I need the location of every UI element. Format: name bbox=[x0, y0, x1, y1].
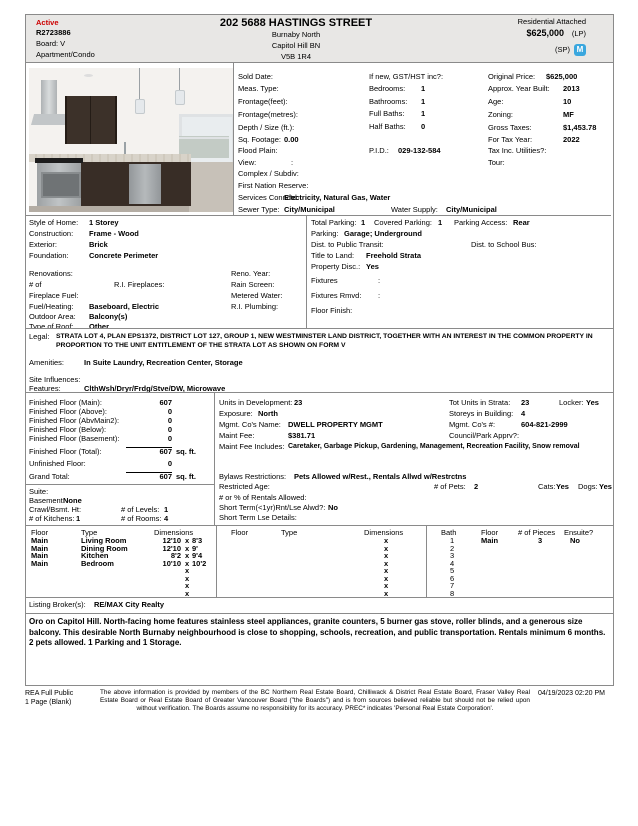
listing-photo bbox=[29, 68, 233, 212]
disclaimer-text: The above information is provided by mem… bbox=[100, 689, 530, 713]
rooms-baths-box: Floor Type Dimensions Main Living Room 1… bbox=[25, 525, 614, 599]
bedrooms-label: Bedrooms: bbox=[369, 85, 405, 94]
photo-oven-door bbox=[41, 172, 81, 198]
ff-basement-label: Finished Floor (Basement): bbox=[29, 435, 119, 444]
photo-divider bbox=[233, 63, 234, 215]
room-row-dim2: 10'2 bbox=[192, 560, 206, 569]
ff-total-label: Finished Floor (Total): bbox=[29, 448, 102, 457]
photo-ceiling-light bbox=[84, 74, 93, 77]
storeys-value: 4 bbox=[521, 410, 525, 419]
ff-total-unit: sq. ft. bbox=[176, 448, 196, 457]
full-baths-value: 1 bbox=[421, 110, 425, 119]
style-of-home-label: Style of Home: bbox=[29, 219, 78, 228]
kitchens-value: 1 bbox=[76, 515, 80, 524]
legal-box: Legal: STRATA LOT 4, PLAN EPS1372, DISTR… bbox=[25, 328, 614, 394]
construction-label: Construction: bbox=[29, 230, 73, 239]
gross-taxes-label: Gross Taxes: bbox=[488, 124, 532, 133]
status-badge: Active bbox=[36, 19, 59, 28]
fireplace-fuel-label: Fireplace Fuel: bbox=[29, 292, 79, 301]
unfinished-value: 0 bbox=[126, 460, 172, 469]
title-to-land-value: Freehold Strata bbox=[366, 252, 421, 261]
area-label: Burnaby North bbox=[171, 31, 421, 40]
column-divider bbox=[306, 215, 307, 329]
ff-above-value: 0 bbox=[126, 408, 172, 417]
year-built-value: 2013 bbox=[563, 85, 580, 94]
water-supply-label: Water Supply: bbox=[391, 206, 438, 215]
locker-value: Yes bbox=[586, 399, 599, 408]
suite-divider bbox=[26, 484, 214, 485]
maint-fee-value: $381.71 bbox=[288, 432, 315, 441]
legal-label: Legal: bbox=[29, 333, 49, 342]
list-price: $625,000 bbox=[526, 28, 564, 38]
table-divider bbox=[216, 526, 217, 598]
complex-label: Complex / Subdiv: bbox=[238, 170, 299, 179]
zoning-label: Zoning: bbox=[488, 111, 513, 120]
remarks-box: Oro on Capitol Hill. North-facing home f… bbox=[25, 613, 614, 686]
renovations-label: Renovations: bbox=[29, 270, 73, 279]
exposure-value: North bbox=[258, 410, 278, 419]
fixtures-rmvd-label: Fixtures Rmvd: bbox=[311, 292, 361, 301]
age-value: 10 bbox=[563, 98, 571, 107]
school-bus-label: Dist. to School Bus: bbox=[471, 241, 536, 250]
foundation-value: Concrete Perimeter bbox=[89, 252, 158, 261]
style-of-home-value: 1 Storey bbox=[89, 219, 119, 228]
rain-screen-label: Rain Screen: bbox=[231, 281, 274, 290]
num-pets-label: # of Pets: bbox=[434, 483, 466, 492]
tot-units-value: 23 bbox=[521, 399, 529, 408]
postal-code: V5B 1R4 bbox=[171, 53, 421, 62]
rentals-allowed-label: # or % of Rentals Allowed: bbox=[219, 494, 307, 503]
grand-total-value: 607 bbox=[126, 472, 172, 482]
maint-fee-label: Maint Fee: bbox=[219, 432, 254, 441]
fixtures-value: : bbox=[378, 277, 380, 286]
board-label: Board: V bbox=[36, 40, 65, 49]
photo-cabinet-seam bbox=[90, 96, 91, 144]
locker-label: Locker: bbox=[559, 399, 584, 408]
sewer-label: Sewer Type: bbox=[238, 206, 280, 215]
ff-main-value: 607 bbox=[126, 399, 172, 408]
lp-label: (LP) bbox=[572, 30, 586, 39]
parking-label: Parking: bbox=[311, 230, 339, 239]
room-row-type: Bedroom bbox=[81, 560, 114, 569]
short-term-value: No bbox=[328, 504, 338, 513]
total-parking-label: Total Parking: bbox=[311, 219, 356, 228]
fixtures-label: Fixtures bbox=[311, 277, 338, 286]
floor-finish-label: Floor Finish: bbox=[311, 307, 352, 316]
floor-area-box: Finished Floor (Main): 607 Finished Floo… bbox=[25, 392, 614, 527]
matrix-logo-icon[interactable]: M bbox=[574, 44, 586, 56]
bedrooms-value: 1 bbox=[421, 85, 425, 94]
grand-total-unit: sq. ft. bbox=[176, 473, 196, 482]
bathrooms-value: 1 bbox=[421, 98, 425, 107]
year-built-label: Approx. Year Built: bbox=[488, 85, 550, 94]
meas-type-label: Meas. Type: bbox=[238, 85, 279, 94]
dwelling-type: Apartment/Condo bbox=[36, 51, 95, 60]
property-class: Residential Attached bbox=[518, 18, 586, 27]
tax-inc-label: Tax Inc. Utilities?: bbox=[488, 147, 546, 156]
photo-pendant-light-1 bbox=[135, 99, 145, 114]
view-label: View: bbox=[238, 159, 256, 168]
bylaws-label: Bylaws Restrictions: bbox=[219, 473, 286, 482]
room-row-floor: Main bbox=[31, 560, 48, 569]
photo-faucet bbox=[124, 142, 126, 154]
bylaws-value: Pets Allowed w/Rest., Rentals Allwd w/Re… bbox=[294, 473, 466, 482]
zoning-value: MF bbox=[563, 111, 574, 120]
tax-year-label: For Tax Year: bbox=[488, 136, 532, 145]
amenities-label: Amenities: bbox=[29, 359, 64, 368]
covered-parking-value: 1 bbox=[438, 219, 442, 228]
sold-date-label: Sold Date: bbox=[238, 73, 273, 82]
mgmt-name-label: Mgmt. Co's Name: bbox=[219, 421, 281, 430]
section-divider bbox=[26, 215, 611, 216]
report-name-line1: REA Full Public bbox=[25, 690, 73, 698]
photo-living-area-floor bbox=[189, 162, 233, 212]
construction-value: Frame - Wood bbox=[89, 230, 139, 239]
page-title-address: 202 5688 HASTINGS STREET bbox=[171, 17, 421, 30]
subarea-label: Capitol Hill BN bbox=[171, 42, 421, 51]
amenities-value: In Suite Laundry, Recreation Center, Sto… bbox=[84, 359, 243, 368]
tax-year-value: 2022 bbox=[563, 136, 580, 145]
exterior-value: Brick bbox=[89, 241, 108, 250]
photo-range-hood-chimney bbox=[41, 80, 57, 116]
sewer-value: City/Municipal bbox=[284, 206, 335, 215]
sq-footage-label: Sq. Footage: bbox=[238, 136, 281, 145]
rooms-floor-header: Floor bbox=[231, 529, 248, 538]
council-apprv-label: Council/Park Apprv?: bbox=[449, 432, 519, 441]
restricted-age-label: Restricted Age: bbox=[219, 483, 270, 492]
title-to-land-label: Title to Land: bbox=[311, 252, 354, 261]
tour-label: Tour: bbox=[488, 159, 505, 168]
total-parking-value: 1 bbox=[361, 219, 365, 228]
bath-row-ensuite: No bbox=[570, 537, 580, 546]
report-name-line2: 1 Page (Blank) bbox=[25, 699, 71, 707]
sp-label: (SP) bbox=[555, 46, 570, 55]
photo-pendant-cord-2 bbox=[179, 68, 180, 90]
parking-value: Garage; Underground bbox=[344, 230, 422, 239]
property-disc-label: Property Disc.: bbox=[311, 263, 360, 272]
rooms-count-value: 4 bbox=[164, 515, 168, 524]
cats-label: Cats: bbox=[538, 483, 556, 492]
short-term-label: Short Term(<1yr)Rnt/Lse Alwd?: bbox=[219, 504, 325, 513]
flood-plain-label: Flood Plain: bbox=[238, 147, 278, 156]
listing-broker-value: RE/MAX City Realty bbox=[94, 601, 164, 610]
room-row-dim1: 10'10 bbox=[141, 560, 181, 569]
main-info-box: Sold Date: Meas. Type: Frontage(feet): F… bbox=[25, 62, 614, 330]
header-bar: Active R2723886 Board: V Apartment/Condo… bbox=[25, 14, 614, 64]
kitchens-label: # of Kitchens: bbox=[29, 515, 74, 524]
fixtures-rmvd-value: : bbox=[378, 292, 380, 301]
rooms-count-label: # of Rooms: bbox=[121, 515, 161, 524]
dogs-label: Dogs: bbox=[578, 483, 598, 492]
pid-value: 029-132-584 bbox=[398, 147, 441, 156]
ff-below-value: 0 bbox=[126, 426, 172, 435]
depth-size-label: Depth / Size (ft.): bbox=[238, 124, 294, 133]
ri-plumbing-label: R.I. Plumbing: bbox=[231, 303, 278, 312]
bath-row-floor: Main bbox=[481, 537, 498, 546]
photo-window-mullion bbox=[179, 137, 229, 139]
gross-taxes-value: $1,453.78 bbox=[563, 124, 596, 133]
photo-dishwasher bbox=[129, 164, 161, 204]
ff-abvmain2-value: 0 bbox=[126, 417, 172, 426]
num-of-fireplaces-label: # of bbox=[29, 281, 42, 290]
ff-basement-value: 0 bbox=[126, 435, 172, 444]
pid-label: P.I.D.: bbox=[369, 147, 389, 156]
photo-pendant-light-2 bbox=[175, 90, 185, 105]
metered-water-label: Metered Water: bbox=[231, 292, 282, 301]
frontage-metres-label: Frontage(metres): bbox=[238, 111, 298, 120]
maint-includes-value: Caretaker, Garbage Pickup, Gardening, Ma… bbox=[288, 443, 580, 451]
half-baths-value: 0 bbox=[421, 123, 425, 132]
num-pets-value: 2 bbox=[474, 483, 478, 492]
unfinished-label: Unfinished Floor: bbox=[29, 460, 86, 469]
photo-pendant-cord-1 bbox=[139, 68, 140, 99]
parking-access-label: Parking Access: bbox=[454, 219, 507, 228]
sq-footage-value: 0.00 bbox=[284, 136, 299, 145]
bathrooms-label: Bathrooms: bbox=[369, 98, 407, 107]
fuel-heating-value: Baseboard, Electric bbox=[89, 303, 159, 312]
units-dev-value: 23 bbox=[294, 399, 302, 408]
foundation-label: Foundation: bbox=[29, 252, 69, 261]
original-price-label: Original Price: bbox=[488, 73, 535, 82]
rooms-type-header: Type bbox=[281, 529, 297, 538]
services-value: Electricity, Natural Gas, Water bbox=[284, 194, 390, 203]
transit-label: Dist. to Public Transit: bbox=[311, 241, 384, 250]
water-supply-value: City/Municipal bbox=[446, 206, 497, 215]
exposure-label: Exposure: bbox=[219, 410, 253, 419]
listing-sheet: Active R2723886 Board: V Apartment/Condo… bbox=[0, 0, 638, 826]
exterior-label: Exterior: bbox=[29, 241, 57, 250]
mls-number: R2723886 bbox=[36, 29, 71, 38]
bath-row-pieces: 3 bbox=[538, 537, 542, 546]
fuel-heating-label: Fuel/Heating: bbox=[29, 303, 74, 312]
reno-year-label: Reno. Year: bbox=[231, 270, 270, 279]
first-nation-label: First Nation Reserve: bbox=[238, 182, 308, 191]
parking-access-value: Rear bbox=[513, 219, 530, 228]
ff-total-value: 607 bbox=[126, 447, 172, 457]
photo-range-hood-canopy bbox=[31, 114, 69, 125]
property-disc-value: Yes bbox=[366, 263, 379, 272]
report-datetime: 04/19/2023 02:20 PM bbox=[538, 690, 605, 698]
grand-total-label: Grand Total: bbox=[29, 473, 70, 482]
legal-text: STRATA LOT 4, PLAN EPS1372, DISTRICT LOT… bbox=[56, 333, 606, 350]
full-baths-label: Full Baths: bbox=[369, 110, 404, 119]
column-divider bbox=[214, 393, 215, 526]
gst-label: If new, GST/HST inc?: bbox=[369, 73, 443, 82]
mgmt-name-value: DWELL PROPERTY MGMT bbox=[288, 421, 383, 430]
mgmt-num-label: Mgmt. Co's #: bbox=[449, 421, 495, 430]
frontage-feet-label: Frontage(feet): bbox=[238, 98, 288, 107]
units-dev-label: Units in Development: bbox=[219, 399, 292, 408]
dogs-value: Yes bbox=[599, 483, 612, 492]
bath-pieces-header: # of Pieces bbox=[518, 529, 555, 538]
table-divider bbox=[426, 526, 427, 598]
short-term-details-label: Short Term Lse Details: bbox=[219, 514, 297, 523]
cats-value: Yes bbox=[556, 483, 569, 492]
covered-parking-label: Covered Parking: bbox=[374, 219, 432, 228]
storeys-label: Storeys in Building: bbox=[449, 410, 513, 419]
photo-upper-cabinets bbox=[65, 96, 117, 144]
ri-fireplaces-label: R.I. Fireplaces: bbox=[114, 281, 164, 290]
mgmt-num-value: 604-821-2999 bbox=[521, 421, 568, 430]
half-baths-label: Half Baths: bbox=[369, 123, 406, 132]
age-label: Age: bbox=[488, 98, 503, 107]
view-value: : bbox=[291, 159, 293, 168]
maint-includes-label: Maint Fee Includes: bbox=[219, 443, 284, 452]
listing-broker-label: Listing Broker(s): bbox=[29, 601, 86, 610]
public-remarks: Oro on Capitol Hill. North-facing home f… bbox=[29, 617, 607, 649]
tot-units-label: Tot Units in Strata: bbox=[449, 399, 510, 408]
original-price-value: $625,000 bbox=[546, 73, 577, 82]
